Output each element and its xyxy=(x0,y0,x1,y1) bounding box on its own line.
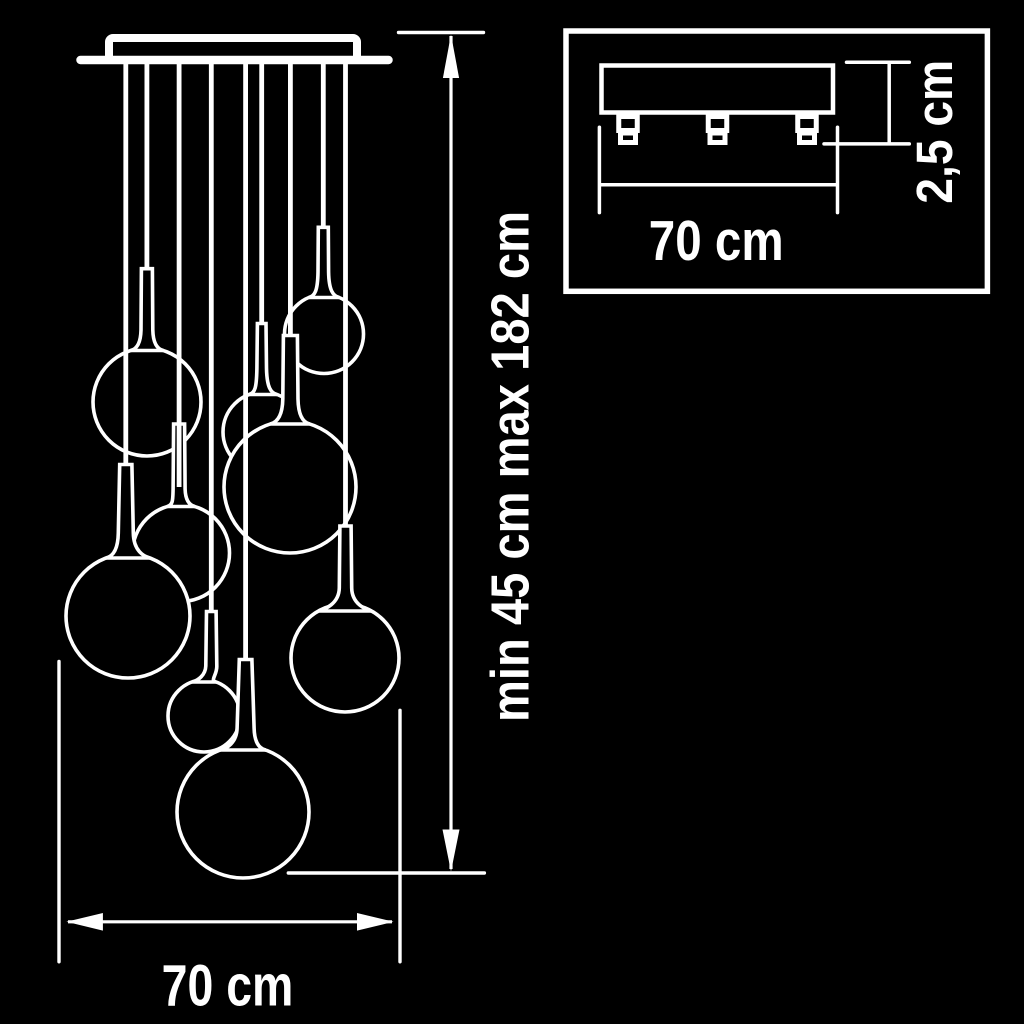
svg-text:70 cm: 70 cm xyxy=(649,209,784,273)
svg-text:2,5 cm: 2,5 cm xyxy=(906,60,963,204)
svg-text:70 cm: 70 cm xyxy=(162,954,294,1019)
svg-text:min 45 cm max 182 cm: min 45 cm max 182 cm xyxy=(482,211,541,722)
